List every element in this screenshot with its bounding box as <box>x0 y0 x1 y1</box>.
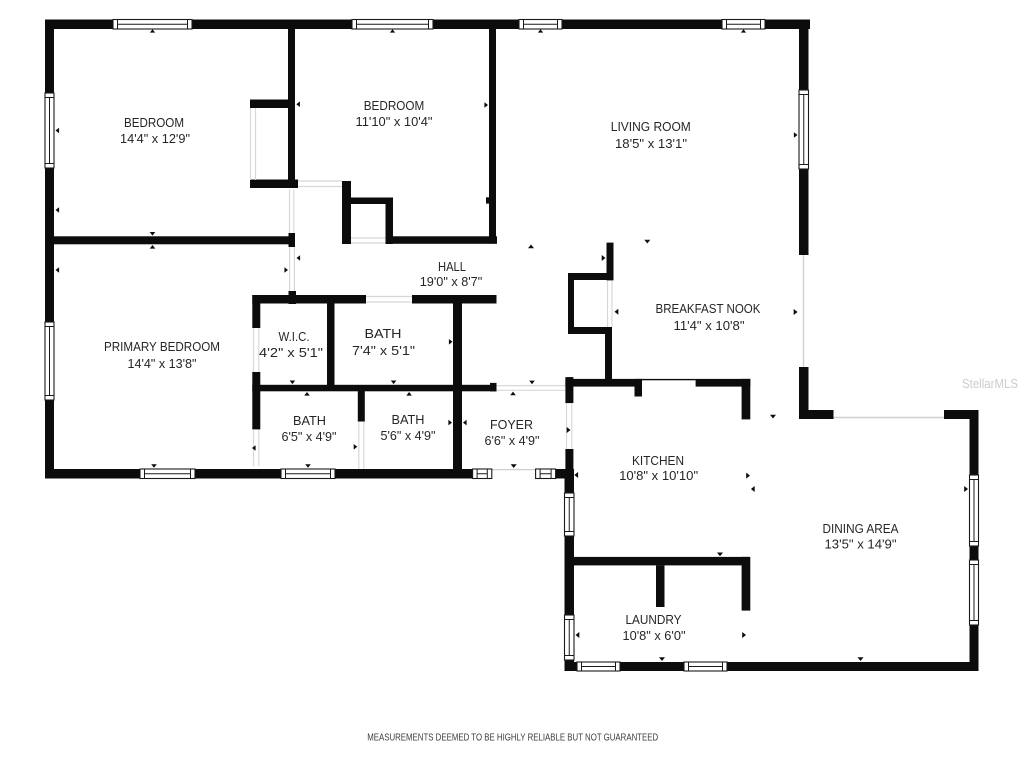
svg-text:11'4" x 10'8": 11'4" x 10'8" <box>674 318 745 333</box>
svg-text:4'2" x 5'1": 4'2" x 5'1" <box>259 345 323 360</box>
svg-text:BEDROOM: BEDROOM <box>364 98 425 113</box>
svg-text:5'6" x 4'9": 5'6" x 4'9" <box>381 428 436 443</box>
svg-text:MEASUREMENTS DEEMED TO BE HIGH: MEASUREMENTS DEEMED TO BE HIGHLY RELIABL… <box>367 733 658 744</box>
svg-text:10'8" x 10'10": 10'8" x 10'10" <box>619 468 698 483</box>
svg-text:6'6" x 4'9": 6'6" x 4'9" <box>485 433 540 448</box>
svg-text:11'10" x 10'4": 11'10" x 10'4" <box>356 114 433 129</box>
svg-text:BATH: BATH <box>293 413 326 428</box>
svg-text:BEDROOM: BEDROOM <box>124 115 184 130</box>
svg-text:DINING AREA: DINING AREA <box>823 521 899 536</box>
svg-text:14'4" x 12'9": 14'4" x 12'9" <box>120 131 190 146</box>
svg-text:18'5" x 13'1": 18'5" x 13'1" <box>615 136 687 151</box>
svg-text:19'0" x 8'7": 19'0" x 8'7" <box>420 274 483 289</box>
svg-text:FOYER: FOYER <box>490 417 533 432</box>
svg-text:LAUNDRY: LAUNDRY <box>626 612 682 627</box>
svg-text:10'8" x 6'0": 10'8" x 6'0" <box>623 628 686 643</box>
svg-text:HALL: HALL <box>438 259 466 274</box>
svg-text:14'4" x 13'8": 14'4" x 13'8" <box>128 356 197 371</box>
svg-text:PRIMARY BEDROOM: PRIMARY BEDROOM <box>104 339 220 354</box>
svg-text:BREAKFAST NOOK: BREAKFAST NOOK <box>656 301 761 316</box>
svg-text:7'4" x 5'1": 7'4" x 5'1" <box>352 343 415 358</box>
svg-text:BATH: BATH <box>392 412 425 427</box>
svg-text:13'5" x 14'9": 13'5" x 14'9" <box>825 536 897 551</box>
svg-text:StellarMLS: StellarMLS <box>962 377 1018 391</box>
svg-text:6'5" x 4'9": 6'5" x 4'9" <box>282 429 337 444</box>
svg-text:BATH: BATH <box>365 326 402 341</box>
svg-text:KITCHEN: KITCHEN <box>632 453 684 468</box>
svg-text:LIVING ROOM: LIVING ROOM <box>611 119 691 134</box>
svg-text:W.I.C.: W.I.C. <box>279 329 310 344</box>
